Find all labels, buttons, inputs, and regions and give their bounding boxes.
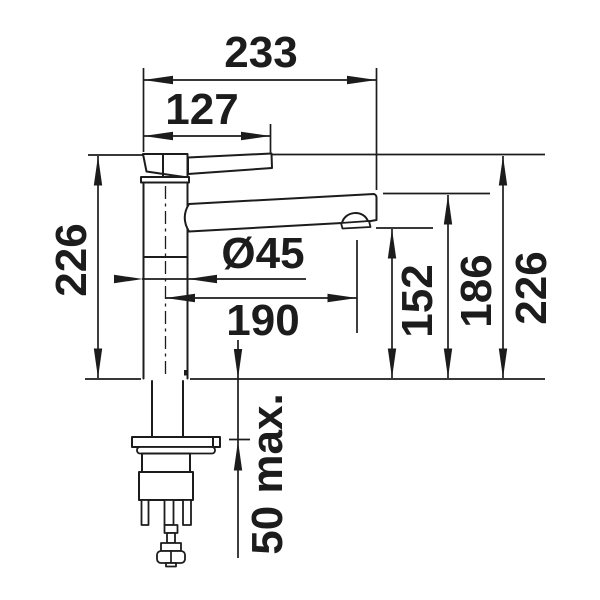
- cap-collar-ring: [141, 177, 189, 183]
- aerator-outlet: [341, 221, 371, 229]
- arrowhead-226-right-top: [499, 156, 507, 186]
- arrowhead-186-top: [444, 195, 452, 225]
- mounting-bracket-body: [139, 472, 193, 500]
- dim-label-190: 190: [226, 296, 299, 345]
- arrowhead-45-left: [114, 275, 143, 283]
- dim-label-diameter-45: Ø45: [221, 229, 304, 278]
- arrowhead-127-right: [241, 132, 271, 140]
- mixer-cap: [143, 154, 188, 178]
- dim-label-226-left: 226: [47, 223, 96, 296]
- base-flange: [132, 437, 220, 447]
- arrowhead-50-bottom: [234, 441, 242, 471]
- bracket-claw-middle: [165, 500, 174, 525]
- dim-label-152: 152: [393, 264, 442, 337]
- drawing-canvas: 233 127 Ø45 190 226 152 186 226 50 max.: [0, 0, 600, 600]
- arrowhead-45-right: [188, 275, 217, 283]
- arrowhead-152-top: [388, 229, 396, 259]
- dim-label-186: 186: [452, 254, 501, 327]
- dim-label-127: 127: [165, 85, 238, 134]
- arrowhead-186-bottom: [444, 349, 452, 379]
- screw-tip-notch: [166, 563, 176, 567]
- spacer-block: [142, 454, 190, 473]
- faucet-lever-handle: [188, 154, 272, 175]
- bracket-claw-right: [183, 500, 191, 525]
- arrowhead-233-left: [144, 76, 174, 84]
- dim-label-233: 233: [224, 28, 297, 77]
- stud-lower: [167, 533, 175, 543]
- screw-collar: [161, 543, 181, 551]
- dim-label-226-right: 226: [507, 251, 556, 324]
- stud-upper: [165, 525, 178, 533]
- arrowhead-226-left-bottom: [94, 349, 102, 379]
- arrowhead-190-right: [328, 294, 358, 302]
- arrowhead-233-right: [347, 76, 377, 84]
- arrowhead-50-top: [234, 349, 242, 379]
- dim-label-50-max: 50 max.: [243, 393, 292, 554]
- arrowhead-152-bottom: [388, 349, 396, 379]
- arrowhead-226-left-top: [94, 156, 102, 186]
- set-screw-mark: [184, 370, 188, 376]
- shank-fill: [152, 381, 183, 437]
- faucet-dimension-drawing: 233 127 Ø45 190 226 152 186 226 50 max.: [0, 0, 600, 600]
- bracket-claw-left: [142, 500, 149, 525]
- arrowhead-226-right-bottom: [499, 349, 507, 379]
